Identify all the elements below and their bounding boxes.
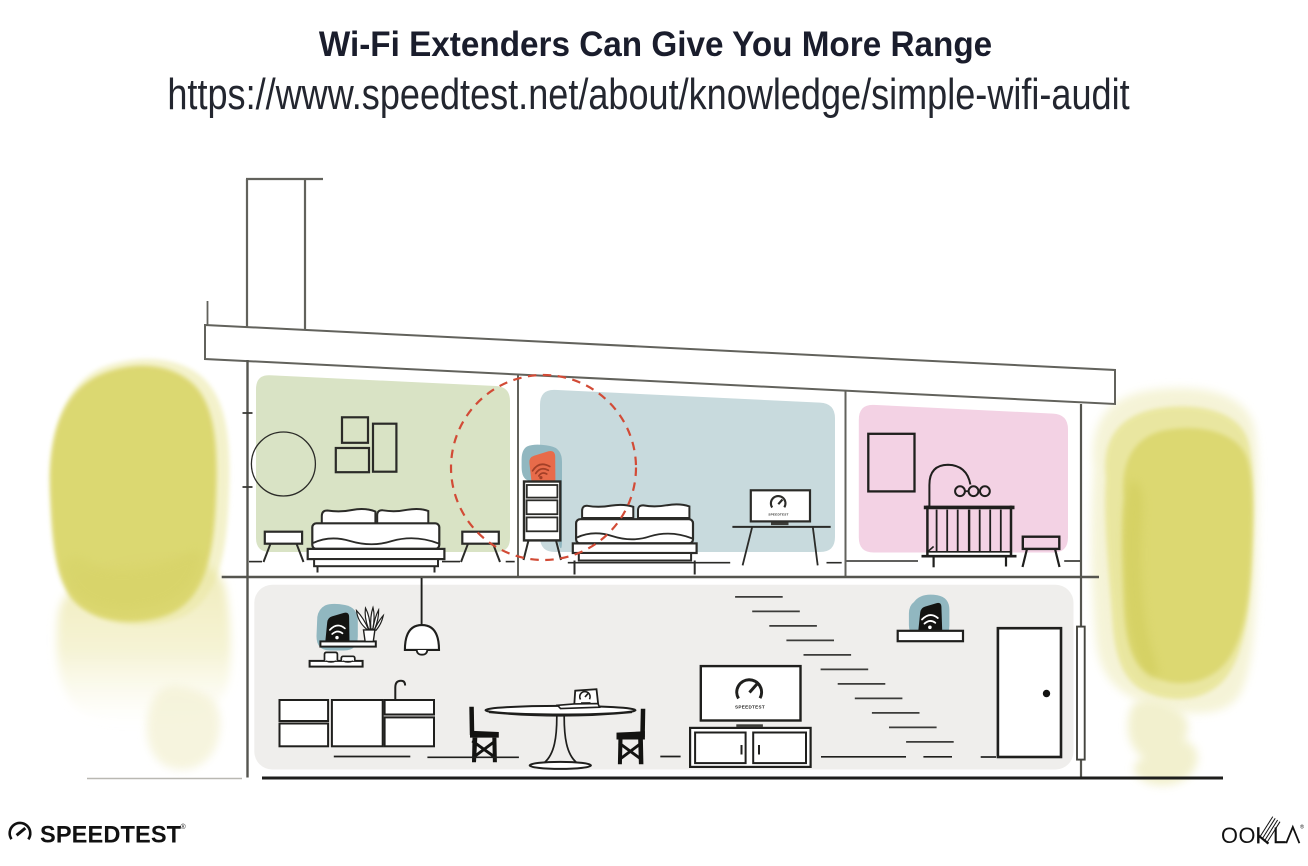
- svg-text:Wi-Fi Extenders Can Give You M: Wi-Fi Extenders Can Give You More Range: [319, 25, 992, 64]
- svg-text:https://www.speedtest.net/abou: https://www.speedtest.net/about/knowledg…: [167, 70, 1129, 119]
- svg-text:SPEEDTEST: SPEEDTEST: [40, 823, 182, 849]
- svg-text:OO: OO: [1221, 823, 1256, 848]
- svg-text:SPEEDTEST: SPEEDTEST: [735, 705, 765, 710]
- svg-text:®: ®: [181, 823, 187, 831]
- svg-text:SPEEDTEST: SPEEDTEST: [768, 513, 788, 517]
- svg-text:®: ®: [1300, 824, 1304, 831]
